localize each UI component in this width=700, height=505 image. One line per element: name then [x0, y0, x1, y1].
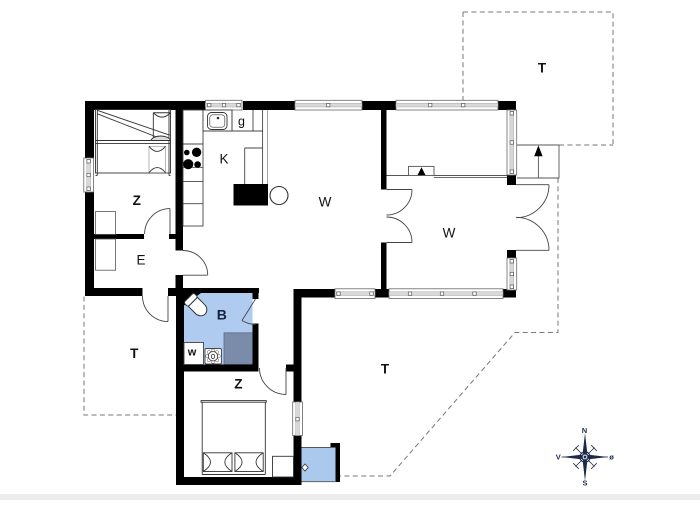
svg-text:K: K — [219, 152, 228, 167]
svg-text:T: T — [130, 346, 139, 361]
svg-text:T: T — [538, 61, 547, 76]
svg-text:N: N — [582, 426, 587, 435]
svg-text:B: B — [217, 307, 227, 323]
svg-text:Z: Z — [133, 193, 141, 208]
svg-text:ø: ø — [609, 453, 614, 462]
svg-text:T: T — [381, 362, 390, 377]
svg-text:W: W — [443, 225, 456, 240]
svg-text:g: g — [238, 115, 245, 129]
svg-text:E: E — [136, 253, 145, 268]
svg-text:S: S — [582, 479, 587, 488]
svg-text:Z: Z — [234, 377, 242, 392]
svg-text:w: w — [187, 347, 197, 359]
svg-text:W: W — [319, 195, 332, 210]
svg-text:V: V — [556, 453, 561, 462]
